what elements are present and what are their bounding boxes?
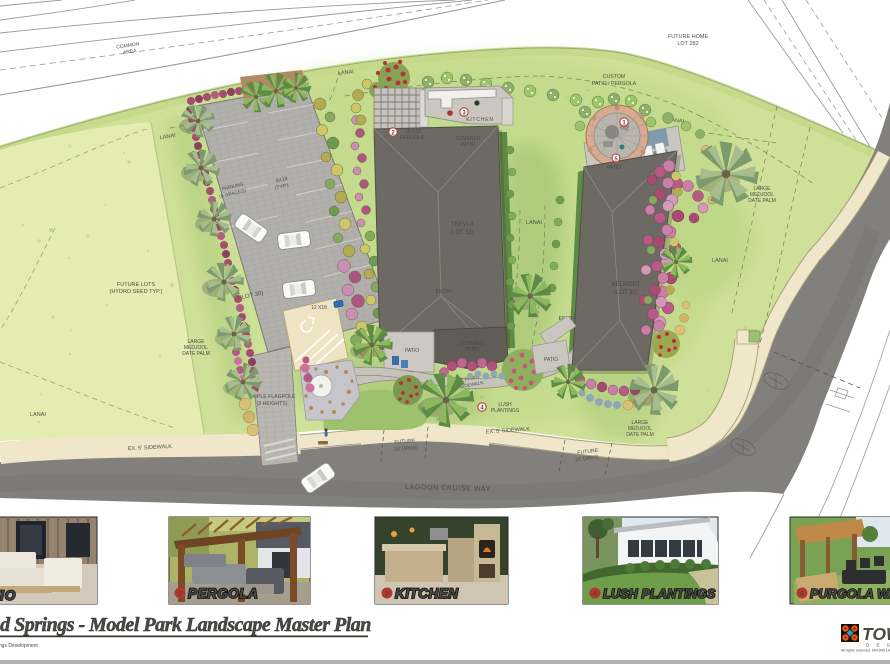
- svg-text:KITCHEN: KITCHEN: [466, 117, 494, 123]
- svg-text:(LOT 31): (LOT 31): [450, 230, 474, 236]
- svg-text:PATIO / PERGOLA: PATIO / PERGOLA: [592, 81, 637, 87]
- svg-text:TOWN: TOWN: [862, 624, 890, 644]
- svg-text:TREVI II: TREVI II: [451, 222, 474, 228]
- svg-text:5: 5: [800, 591, 804, 598]
- svg-text:ENTRY: ENTRY: [436, 289, 454, 295]
- svg-text:TRIPLE FLAGPOLE: TRIPLE FLAGPOLE: [249, 394, 297, 400]
- svg-text:12 X18: 12 X18: [311, 305, 327, 311]
- svg-text:PERGOLA: PERGOLA: [400, 135, 425, 141]
- svg-text:All rights reserved. 904.940.1: All rights reserved. 904.940.1441 To: [841, 649, 890, 653]
- svg-text:LANAI: LANAI: [30, 412, 46, 418]
- svg-text:LUSH PLANTINGS: LUSH PLANTINGS: [603, 587, 716, 601]
- svg-text:PATIO: PATIO: [465, 347, 479, 353]
- svg-text:(3 HEIGHTS): (3 HEIGHTS): [257, 401, 288, 407]
- svg-text:5: 5: [614, 157, 617, 163]
- svg-text:D E S: D E S: [866, 643, 890, 648]
- svg-text:FUTURE LOTS: FUTURE LOTS: [117, 282, 156, 288]
- svg-text:KITCHEN: KITCHEN: [395, 586, 459, 601]
- svg-text:3: 3: [385, 591, 389, 598]
- svg-text:4: 4: [593, 591, 597, 598]
- svg-text:LANAI: LANAI: [712, 258, 728, 264]
- svg-text:2: 2: [178, 591, 182, 598]
- svg-text:PATIO: PATIO: [544, 357, 558, 363]
- svg-text:PATIO: PATIO: [607, 165, 621, 171]
- svg-text:(LOT 32): (LOT 32): [614, 290, 638, 296]
- svg-text:FUTURE HOME: FUTURE HOME: [668, 34, 709, 40]
- svg-text:LANAI: LANAI: [526, 220, 542, 226]
- svg-text:PATIO: PATIO: [0, 588, 16, 603]
- svg-text:PERGOLA: PERGOLA: [188, 586, 258, 601]
- svg-text:CUSTOM: CUSTOM: [603, 74, 625, 80]
- svg-text:DATE PALM: DATE PALM: [748, 198, 776, 204]
- svg-text:PLANTINGS: PLANTINGS: [491, 408, 520, 414]
- svg-text:PATIO: PATIO: [461, 142, 475, 148]
- svg-text:Springs Development: Springs Development: [0, 643, 38, 649]
- svg-text:PURGOLA WALKWAY: PURGOLA WALKWAY: [810, 587, 890, 601]
- svg-text:LOT 282: LOT 282: [677, 41, 698, 47]
- svg-text:BELMONT: BELMONT: [611, 282, 640, 288]
- svg-text:DATE PALM: DATE PALM: [626, 432, 654, 438]
- svg-text:DATE PALM: DATE PALM: [182, 351, 210, 357]
- svg-text:PATIO: PATIO: [405, 348, 419, 354]
- svg-text:(HYDRO SEED TYP.): (HYDRO SEED TYP.): [110, 289, 163, 295]
- svg-text:and Springs - Model Park Lands: and Springs - Model Park Landscape Maste…: [0, 614, 371, 636]
